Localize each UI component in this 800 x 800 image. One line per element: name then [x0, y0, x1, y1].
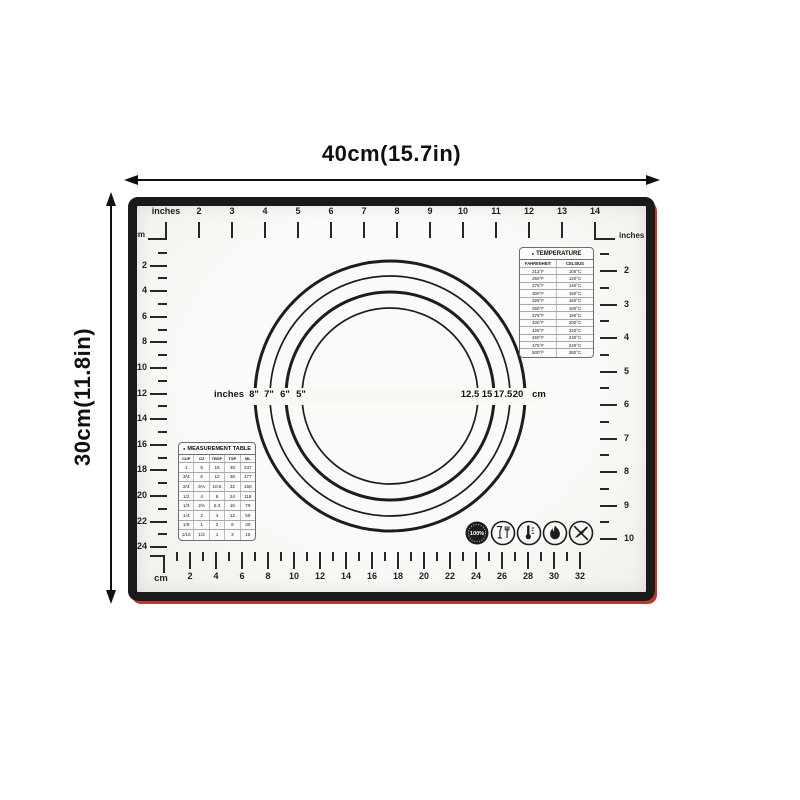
ruler-tick [215, 552, 217, 569]
table-cell: 350°F [520, 305, 557, 311]
bullet-icon: ● [532, 251, 534, 256]
table-cell: 500°F [520, 349, 557, 356]
ruler-number: 10 [283, 571, 305, 581]
ruler-number: 12 [309, 571, 331, 581]
ruler-number: 20 [126, 490, 147, 500]
ruler-tick [150, 444, 167, 446]
ruler-minor-tick [158, 303, 167, 305]
table-cell: 425°F [520, 327, 557, 333]
ruler-number: 30 [543, 571, 565, 581]
ruler-tick [150, 546, 167, 548]
table-cell: 230°C [557, 335, 593, 341]
ruler-tick [528, 222, 530, 238]
ruler-minor-tick [158, 431, 167, 433]
temperature-table-title: TEMPERATURE [536, 251, 581, 257]
ruler-tick [150, 265, 167, 267]
ruler-tick [297, 222, 299, 238]
table-cell: 5⅓ [194, 482, 209, 491]
temperature-table-body: 212°F100°C250°F120°C275°F140°C300°F150°C… [520, 268, 593, 357]
ruler-minor-tick [600, 287, 609, 289]
ruler-minor-tick [228, 552, 230, 561]
table-cell: 59 [241, 511, 255, 520]
ruler-number: 22 [439, 571, 461, 581]
table-cell: 1 [210, 530, 225, 540]
ruler-minor-tick [600, 253, 609, 255]
table-cell: 150°C [557, 290, 593, 296]
ruler-number: 14 [126, 413, 147, 423]
ruler-minor-tick [158, 354, 167, 356]
ruler-tick [397, 552, 399, 569]
ruler-tick [600, 438, 617, 440]
table-cell: 6 [194, 473, 209, 482]
table-row: 275°F140°C [520, 283, 593, 290]
ruler-number: 13 [551, 206, 573, 216]
measurement-table: ● MEASUREMENT TABLE CUPOZTBSPTSPML 18164… [178, 442, 256, 541]
ruler-tick [198, 222, 200, 238]
no-knife-icon [568, 520, 594, 546]
table-row: 350°F180°C [520, 305, 593, 312]
badge-percent-label: 100% [470, 531, 484, 537]
table-cell: 2 [210, 521, 225, 530]
ruler-number: 4 [254, 206, 276, 216]
ruler-number: 6 [126, 311, 147, 321]
ruler-number: 26 [491, 571, 513, 581]
table-row: 500°F260°C [520, 349, 593, 356]
ruler-number: 28 [517, 571, 539, 581]
table-cell: 15 [241, 530, 255, 540]
table-header-cell: CUP [179, 455, 194, 462]
ruler-tick [561, 222, 563, 238]
table-cell: 16 [225, 501, 240, 510]
temperature-table-header: FAHRENHEITCELSIUS [520, 260, 593, 268]
table-cell: 4 [194, 492, 209, 501]
ruler-minor-tick [436, 552, 438, 561]
table-cell: 118 [241, 492, 255, 501]
ruler-tick [600, 304, 617, 306]
ruler-number: 6 [320, 206, 342, 216]
ruler-tick [150, 316, 167, 318]
table-cell: 24 [225, 492, 240, 501]
table-row: 1/32⅔5.31679 [179, 501, 255, 511]
ruler-minor-tick [158, 277, 167, 279]
table-cell: 12 [225, 511, 240, 520]
table-row: 1/24824118 [179, 492, 255, 502]
ruler-minor-tick [600, 521, 609, 523]
table-cell: 250°F [520, 275, 557, 281]
temperature-resistant-icon [516, 520, 542, 546]
table-cell: 212°F [520, 268, 557, 274]
circle-diameter-label: inches [214, 389, 242, 400]
ruler-minor-tick [158, 457, 167, 459]
ruler-number: 2 [624, 265, 644, 275]
ruler-tick [371, 552, 373, 569]
ruler-minor-tick [600, 454, 609, 456]
ruler-tick [345, 552, 347, 569]
ruler-number: 4 [126, 285, 147, 295]
ruler-tick [449, 552, 451, 569]
ruler-tick [527, 552, 529, 569]
bullet-icon: ● [183, 446, 185, 451]
ruler-minor-tick [600, 387, 609, 389]
table-cell: 16 [210, 463, 225, 472]
table-cell: 177 [241, 473, 255, 482]
heat-resistant-icon [542, 520, 568, 546]
table-header-cell: FAHRENHEIT [520, 260, 557, 267]
ruler-minor-tick [254, 552, 256, 561]
table-cell: 158 [241, 482, 255, 491]
ruler-tick [330, 222, 332, 238]
ruler-tick [231, 222, 233, 238]
ruler-tick [150, 367, 167, 369]
ruler-number: 2 [188, 206, 210, 216]
ruler-minor-tick [158, 533, 167, 535]
table-cell: 260°C [557, 349, 593, 356]
ruler-minor-tick [488, 552, 490, 561]
ruler-tick [267, 552, 269, 569]
ruler-minor-tick [600, 354, 609, 356]
ruler-tick [475, 552, 477, 569]
table-cell: 375°F [520, 312, 557, 318]
ruler-number: 22 [126, 516, 147, 526]
table-cell: 100°C [557, 268, 593, 274]
measurement-table-title-row: ● MEASUREMENT TABLE [179, 443, 255, 455]
table-header-cell: TSP [225, 455, 240, 462]
ruler-tick [264, 222, 266, 238]
measurement-table-body: 1816482373/4612361772/35⅓10.6321581/2482… [179, 463, 255, 540]
ruler-number: 24 [126, 541, 147, 551]
table-row: 1/4241259 [179, 511, 255, 521]
temperature-table-title-row: ● TEMPERATURE [520, 248, 593, 260]
table-cell: 325°F [520, 298, 557, 304]
table-cell: 200°C [557, 320, 593, 326]
table-cell: 1/2 [194, 530, 209, 540]
corner-bracket-top-left-h [148, 238, 167, 240]
table-cell: 8 [194, 463, 209, 472]
ruler-minor-tick [358, 552, 360, 561]
table-row: 181648237 [179, 463, 255, 473]
ruler-number: 12 [126, 388, 147, 398]
ruler-minor-tick [600, 320, 609, 322]
table-cell: 220°C [557, 327, 593, 333]
temperature-table: ● TEMPERATURE FAHRENHEITCELSIUS 212°F100… [519, 247, 594, 358]
100-percent-food-grade-icon: 100% [464, 520, 490, 546]
ruler-minor-tick [600, 421, 609, 423]
ruler-number: 10 [126, 362, 147, 372]
ruler-number: 20 [413, 571, 435, 581]
table-row: 212°F100°C [520, 268, 593, 275]
ruler-number: 2 [126, 260, 147, 270]
circle-diameter-label: cm [525, 389, 553, 400]
ruler-minor-tick [566, 552, 568, 561]
ruler-tick [189, 552, 191, 569]
table-row: 400°F200°C [520, 320, 593, 327]
product-image-canvas: 40cm(15.7in) 30cm(11.8in) inches8"7"6"5"… [0, 0, 800, 800]
measurement-table-header: CUPOZTBSPTSPML [179, 455, 255, 463]
table-cell: 2⅔ [194, 501, 209, 510]
ruler-tick [396, 222, 398, 238]
ruler-tick [600, 270, 617, 272]
ruler-tick [579, 552, 581, 569]
ruler-number: 4 [624, 332, 644, 342]
ruler-minor-tick [540, 552, 542, 561]
ruler-minor-tick [306, 552, 308, 561]
table-cell: 30 [241, 521, 255, 530]
ruler-minor-tick [600, 488, 609, 490]
ruler-tick [600, 337, 617, 339]
ruler-number: 24 [465, 571, 487, 581]
ruler-tick [150, 393, 167, 395]
ruler-number: 8 [126, 336, 147, 346]
food-safe-icon [490, 520, 516, 546]
corner-bracket-top-right-h [594, 238, 615, 240]
ruler-number: 5 [624, 366, 644, 376]
ruler-number: 6 [231, 571, 253, 581]
ruler-number: 2 [179, 571, 201, 581]
ruler-tick [150, 521, 167, 523]
table-cell: 450°F [520, 335, 557, 341]
table-cell: 3/4 [179, 473, 194, 482]
table-cell: 3 [225, 530, 240, 540]
top-ruler-inches-unit: inches [144, 206, 188, 216]
table-cell: 6 [225, 521, 240, 530]
table-cell: 300°F [520, 290, 557, 296]
table-cell: 1 [179, 463, 194, 472]
table-cell: 48 [225, 463, 240, 472]
table-cell: 12 [210, 473, 225, 482]
ruler-tick [293, 552, 295, 569]
ruler-minor-tick [384, 552, 386, 561]
ruler-minor-tick [410, 552, 412, 561]
ruler-minor-tick [332, 552, 334, 561]
ruler-tick [600, 404, 617, 406]
table-cell: 400°F [520, 320, 557, 326]
table-cell: 2 [194, 511, 209, 520]
table-cell: 160°C [557, 298, 593, 304]
table-row: 2/35⅓10.632158 [179, 482, 255, 492]
corner-bracket-bottom-left-v [163, 555, 165, 573]
table-header-cell: TBSP [210, 455, 225, 462]
table-row: 425°F220°C [520, 327, 593, 334]
ruler-tick [600, 371, 617, 373]
table-cell: 240°C [557, 342, 593, 348]
ruler-number: 8 [624, 466, 644, 476]
table-row: 1/812630 [179, 521, 255, 531]
table-cell: 10.6 [210, 482, 225, 491]
table-cell: 32 [225, 482, 240, 491]
height-dimension-label: 30cm(11.8in) [70, 297, 96, 497]
table-cell: 36 [225, 473, 240, 482]
ruler-number: 5 [287, 206, 309, 216]
ruler-tick [423, 552, 425, 569]
table-row: 3/461236177 [179, 473, 255, 483]
table-row: 250°F120°C [520, 275, 593, 282]
table-cell: 180°C [557, 305, 593, 311]
table-row: 450°F230°C [520, 335, 593, 342]
ruler-number: 7 [353, 206, 375, 216]
table-row: 325°F160°C [520, 298, 593, 305]
ruler-tick [553, 552, 555, 569]
ruler-minor-tick [158, 329, 167, 331]
ruler-number: 10 [452, 206, 474, 216]
ruler-number: 8 [386, 206, 408, 216]
ruler-number: 3 [221, 206, 243, 216]
table-header-cell: CELSIUS [557, 260, 593, 267]
ruler-minor-tick [280, 552, 282, 561]
ruler-tick [150, 469, 167, 471]
ruler-minor-tick [158, 405, 167, 407]
table-row: 300°F150°C [520, 290, 593, 297]
height-dimension-arrow [103, 192, 119, 604]
table-cell: 1/16 [179, 530, 194, 540]
ruler-number: 7 [624, 433, 644, 443]
width-dimension-label: 40cm(15.7in) [128, 141, 655, 167]
ruler-number: 14 [584, 206, 606, 216]
table-cell: 1/4 [179, 511, 194, 520]
table-cell: 1/3 [179, 501, 194, 510]
ruler-tick [429, 222, 431, 238]
ruler-tick [319, 552, 321, 569]
ruler-minor-tick [158, 252, 167, 254]
table-header-cell: OZ [194, 455, 209, 462]
table-cell: 5.3 [210, 501, 225, 510]
ruler-minor-tick [158, 508, 167, 510]
ruler-number: 12 [518, 206, 540, 216]
table-row: 475°F240°C [520, 342, 593, 349]
table-row: 1/161/21315 [179, 530, 255, 540]
table-cell: 1/8 [179, 521, 194, 530]
circle-diameter-label: 5" [287, 389, 315, 400]
table-cell: 79 [241, 501, 255, 510]
ruler-number: 11 [485, 206, 507, 216]
table-cell: 237 [241, 463, 255, 472]
ruler-minor-tick [158, 482, 167, 484]
top-left-cm-unit: cm [128, 230, 145, 239]
ruler-minor-tick [202, 552, 204, 561]
ruler-tick [150, 341, 167, 343]
ruler-minor-tick [158, 380, 167, 382]
ruler-number: 4 [205, 571, 227, 581]
table-row: 375°F190°C [520, 312, 593, 319]
ruler-number: 9 [624, 500, 644, 510]
table-cell: 1/2 [179, 492, 194, 501]
ruler-tick [495, 222, 497, 238]
ruler-tick [150, 495, 167, 497]
ruler-tick [501, 552, 503, 569]
ruler-number: 16 [361, 571, 383, 581]
table-cell: 140°C [557, 283, 593, 289]
top-right-inches-unit: inches [619, 231, 644, 240]
table-cell: 2/3 [179, 482, 194, 491]
bottom-left-cm-unit: cm [150, 573, 172, 584]
ruler-minor-tick [462, 552, 464, 561]
ruler-tick [600, 471, 617, 473]
ruler-tick [600, 538, 617, 540]
measurement-table-title: MEASUREMENT TABLE [187, 446, 251, 452]
table-cell: 4 [210, 511, 225, 520]
ruler-number: 16 [126, 439, 147, 449]
ruler-tick [241, 552, 243, 569]
ruler-minor-tick [176, 552, 178, 561]
ruler-number: 3 [624, 299, 644, 309]
ruler-tick [462, 222, 464, 238]
ruler-number: 8 [257, 571, 279, 581]
table-cell: 275°F [520, 283, 557, 289]
ruler-minor-tick [514, 552, 516, 561]
ruler-tick [150, 418, 167, 420]
table-cell: 120°C [557, 275, 593, 281]
ruler-number: 18 [387, 571, 409, 581]
ruler-number: 32 [569, 571, 591, 581]
ruler-number: 9 [419, 206, 441, 216]
ruler-number: 10 [624, 533, 644, 543]
table-cell: 1 [194, 521, 209, 530]
ruler-tick [363, 222, 365, 238]
ruler-tick [600, 505, 617, 507]
ruler-tick [150, 290, 167, 292]
table-cell: 190°C [557, 312, 593, 318]
table-header-cell: ML [241, 455, 255, 462]
table-cell: 8 [210, 492, 225, 501]
width-dimension-arrow [124, 172, 660, 188]
ruler-number: 6 [624, 399, 644, 409]
ruler-number: 14 [335, 571, 357, 581]
table-cell: 475°F [520, 342, 557, 348]
ruler-number: 18 [126, 464, 147, 474]
